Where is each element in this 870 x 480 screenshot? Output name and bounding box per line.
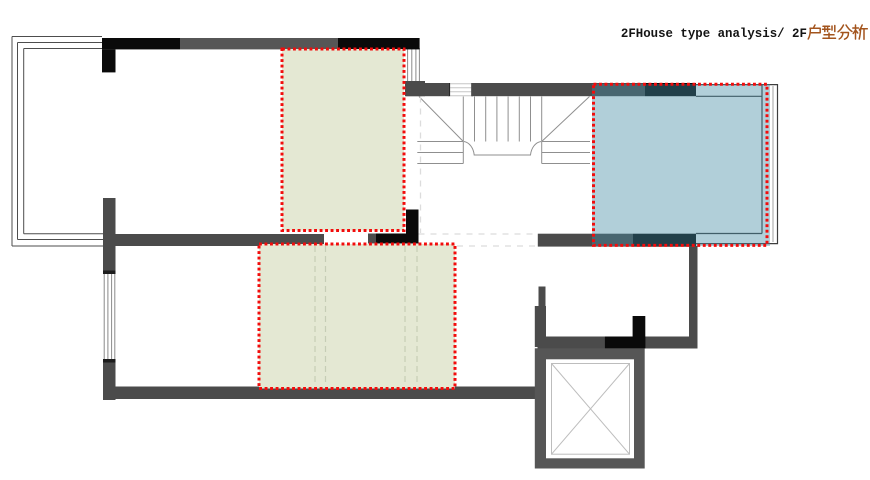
svg-text:2FHouse type analysis/ 2F: 2FHouse type analysis/ 2F: [621, 27, 807, 41]
